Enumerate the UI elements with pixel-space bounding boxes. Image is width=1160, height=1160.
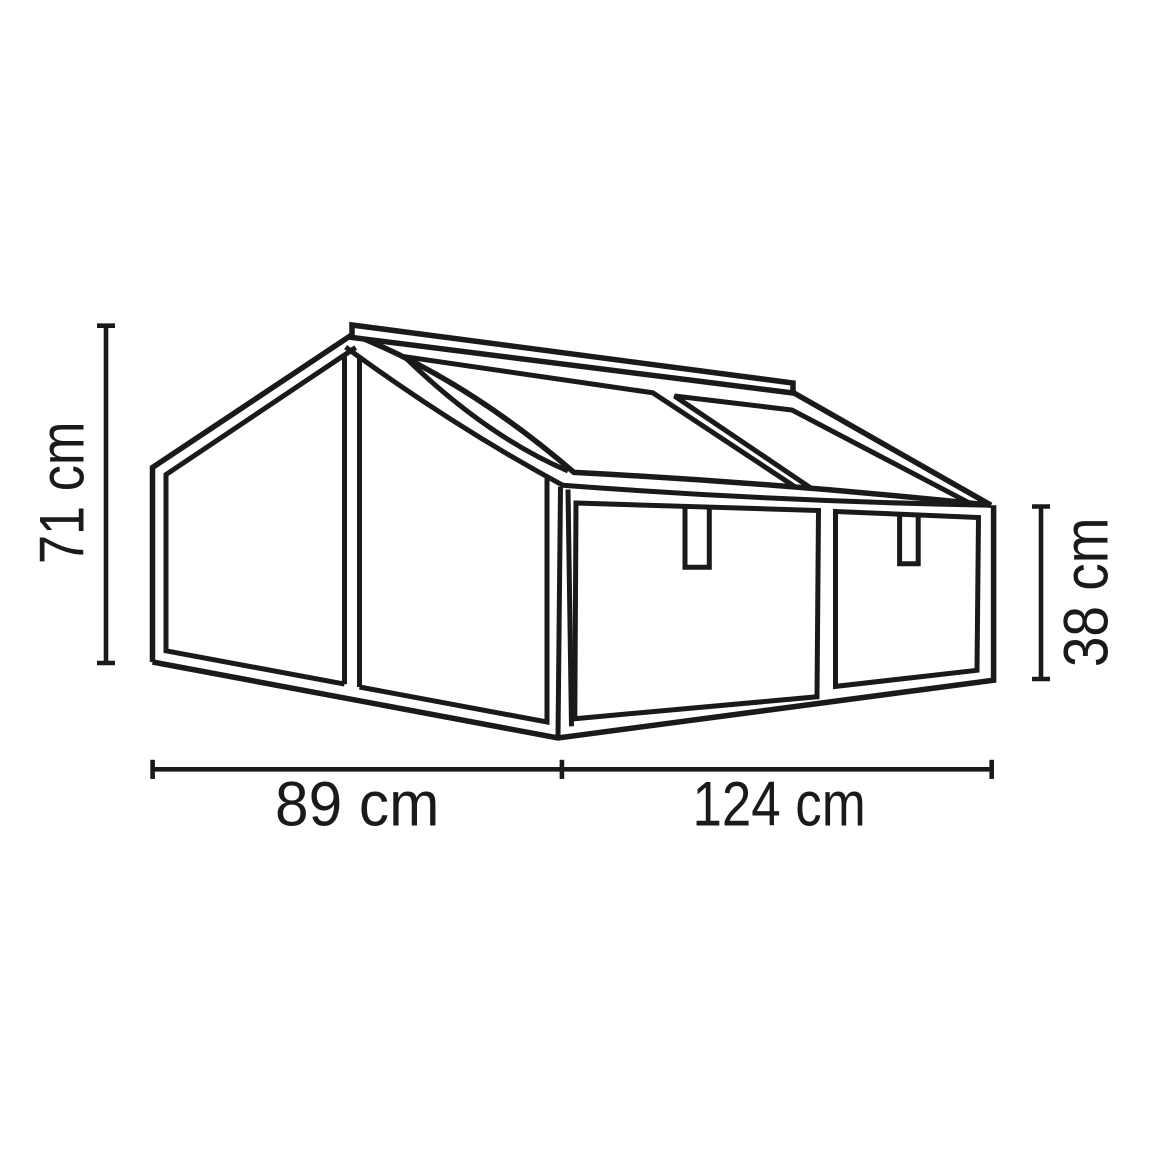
svg-text:71 cm: 71 cm	[27, 422, 98, 565]
svg-text:124 cm: 124 cm	[692, 769, 865, 840]
svg-text:89 cm: 89 cm	[275, 769, 439, 840]
svg-text:38 cm: 38 cm	[1050, 517, 1122, 667]
